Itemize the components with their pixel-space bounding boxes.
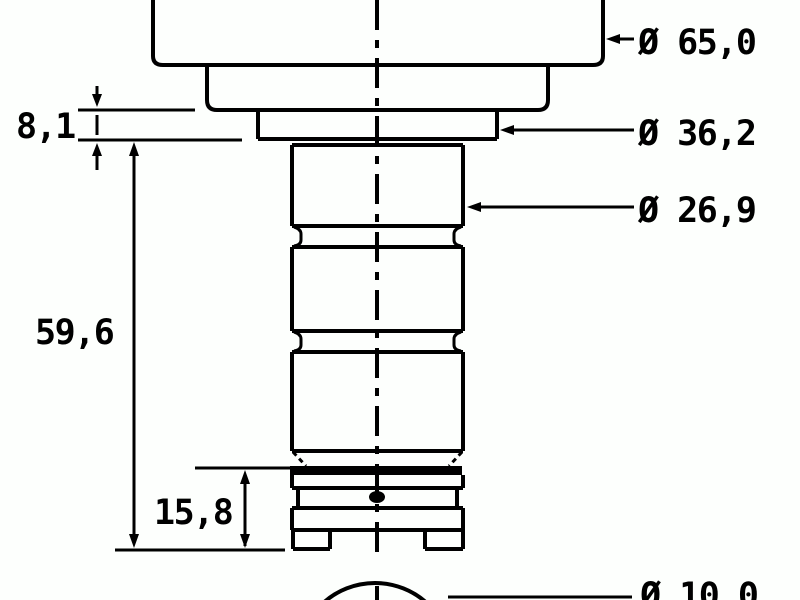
leader-arrow	[467, 202, 481, 212]
shaft-diameter-label: Ø 26,9	[637, 191, 755, 231]
leader-arrow	[500, 125, 514, 135]
dimension-shaft-length: 59,6	[35, 142, 285, 550]
flange-height-label: 8,1	[16, 107, 75, 147]
shaft-length-label: 59,6	[35, 313, 114, 353]
pin-diameter-label: Ø 10,0	[639, 576, 757, 600]
technical-drawing-page: 8,1 59,6 15,8 Ø 65,0 Ø 36,2	[0, 0, 800, 600]
dimension-coupling-length: 15,8	[154, 468, 290, 548]
body-diameter-label: Ø 65,0	[637, 23, 755, 63]
arrow-down	[240, 534, 250, 548]
flange-diameter-label: Ø 36,2	[637, 114, 755, 154]
arrow-up	[240, 470, 250, 484]
dimension-pin-diameter: Ø 10,0	[448, 576, 757, 600]
dimension-shaft-diameter: Ø 26,9	[467, 191, 755, 231]
arrow-up	[129, 142, 139, 156]
dimension-body-diameter: Ø 65,0	[606, 23, 755, 63]
arrow-down	[92, 94, 102, 107]
chamfer-lines	[293, 452, 462, 466]
dimension-flange-diameter: Ø 36,2	[500, 114, 755, 154]
shaft-drawing: 8,1 59,6 15,8 Ø 65,0 Ø 36,2	[0, 0, 800, 600]
coupling-length-label: 15,8	[154, 493, 232, 533]
arrow-down	[129, 534, 139, 548]
leader-arrow	[606, 34, 620, 44]
